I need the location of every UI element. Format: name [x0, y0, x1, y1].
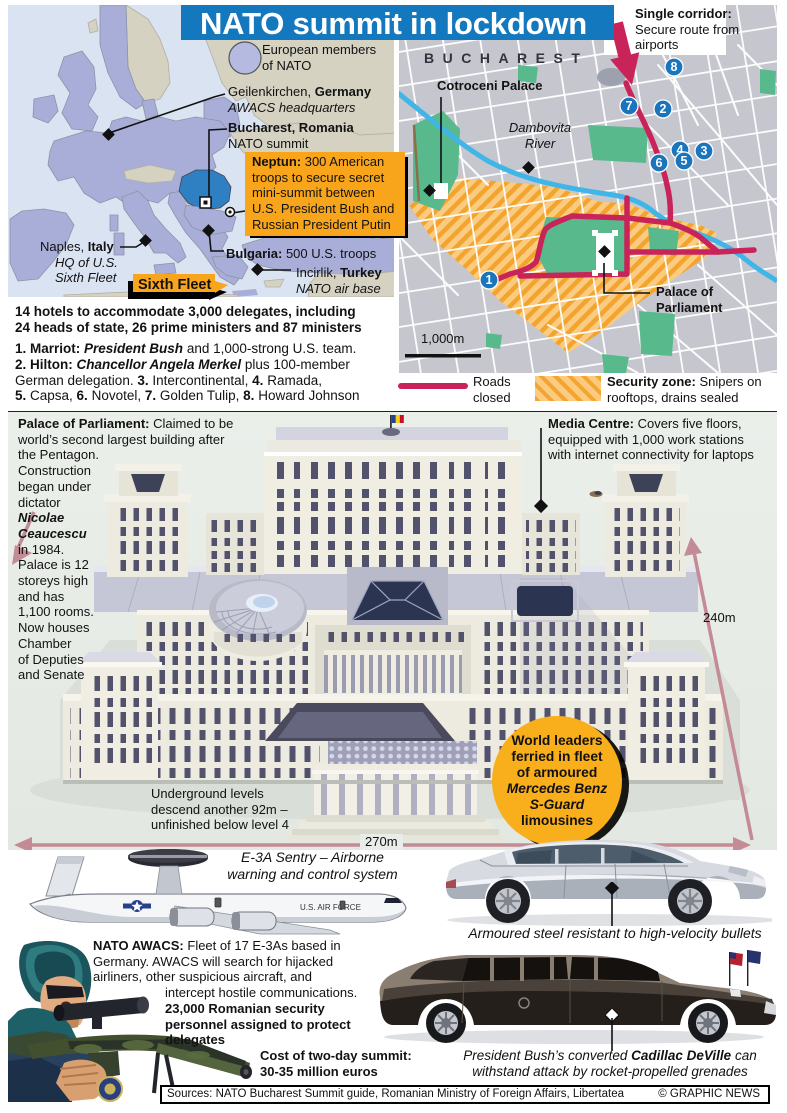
svg-text:8: 8	[671, 60, 678, 74]
svg-text:2: 2	[660, 102, 667, 116]
svg-text:7: 7	[626, 99, 633, 113]
svg-text:6: 6	[656, 156, 663, 170]
svg-text:3: 3	[701, 144, 708, 158]
svg-text:U.S. AIR FORCE: U.S. AIR FORCE	[300, 903, 361, 912]
svg-text:5: 5	[681, 154, 688, 168]
svg-text:Sixth Fleet: Sixth Fleet	[138, 277, 211, 293]
svg-text:1: 1	[486, 273, 493, 287]
